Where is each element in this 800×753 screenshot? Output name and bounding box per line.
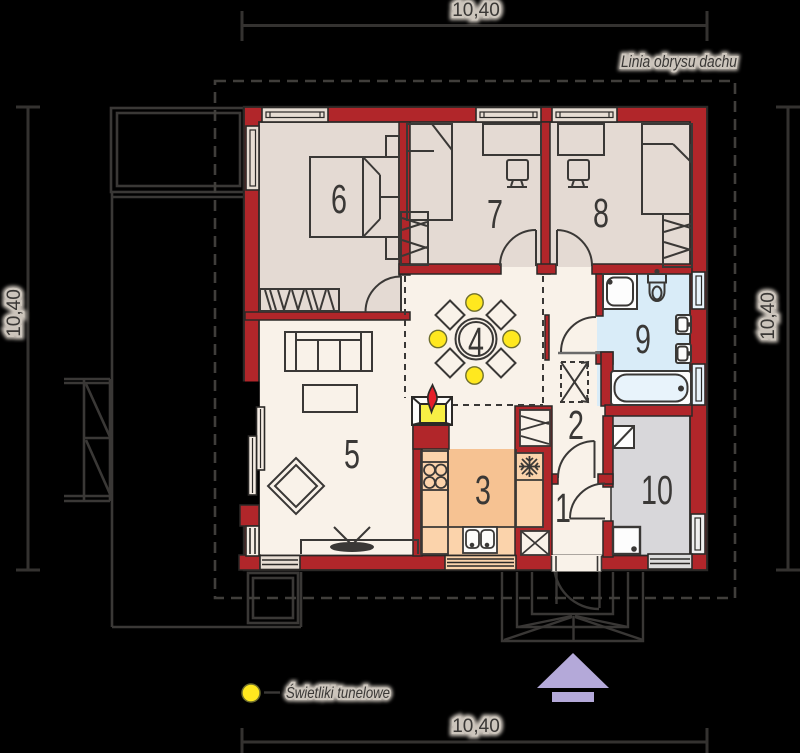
- svg-text:9: 9: [635, 317, 651, 362]
- svg-text:8: 8: [593, 191, 609, 236]
- svg-text:5: 5: [344, 432, 360, 477]
- svg-text:6: 6: [331, 177, 347, 222]
- svg-text:Linia obrysu dachu: Linia obrysu dachu: [621, 53, 737, 71]
- svg-text:10,40: 10,40: [4, 289, 25, 337]
- svg-text:10: 10: [641, 468, 673, 513]
- svg-text:10,40: 10,40: [452, 716, 500, 737]
- svg-text:3: 3: [475, 468, 491, 513]
- svg-text:10,40: 10,40: [758, 292, 779, 340]
- svg-text:2: 2: [568, 403, 584, 448]
- svg-text:Świetliki tunelowe: Świetliki tunelowe: [286, 683, 390, 702]
- svg-text:10,40: 10,40: [452, 0, 500, 21]
- svg-text:1: 1: [555, 486, 571, 531]
- svg-text:4: 4: [468, 320, 484, 365]
- svg-text:7: 7: [487, 192, 503, 237]
